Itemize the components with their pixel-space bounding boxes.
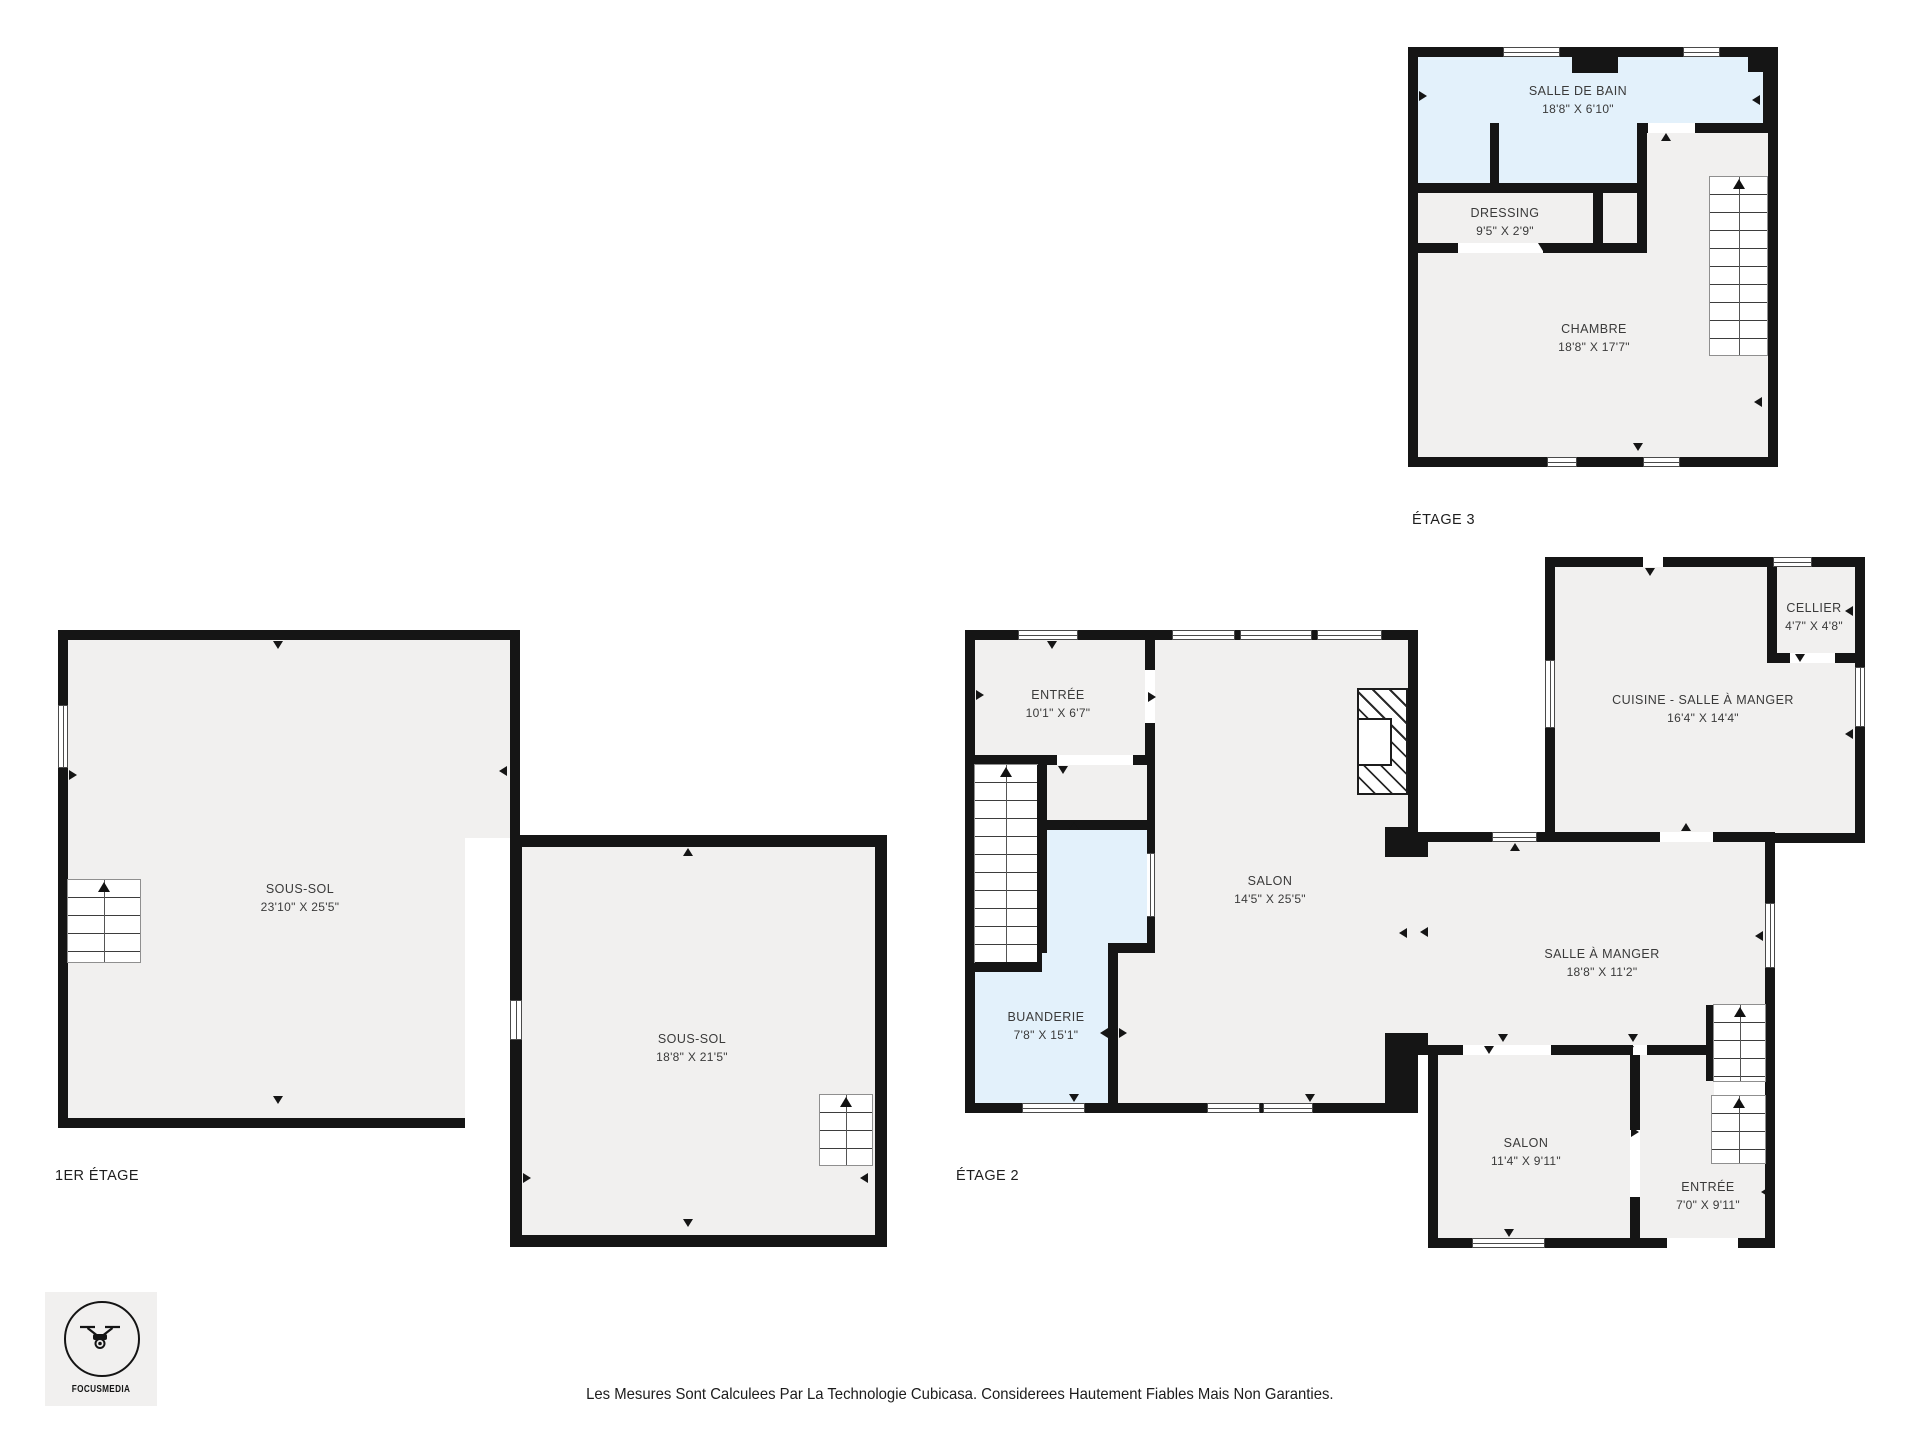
wall [1490,123,1499,183]
staircase-lower-flight [1712,1096,1765,1163]
wall [1108,953,1118,1103]
wall [1706,1005,1714,1081]
door-marker-icon [683,848,693,856]
staircase [975,765,1037,962]
door-marker-icon [1498,1034,1508,1042]
door-marker-icon [1538,243,1548,251]
window [1492,832,1537,842]
double-staircase [1706,1005,1767,1163]
up-arrow-icon [1733,179,1745,189]
door-marker-icon [1058,766,1068,774]
up-arrow-icon [1734,1007,1746,1017]
room-label-cellier: CELLIER 4'7" X 4'8" [1785,601,1843,633]
window [1855,667,1865,727]
room-name: CUISINE - SALLE À MANGER [1612,693,1794,707]
window [1317,630,1382,640]
up-arrow-icon [1733,1098,1745,1108]
door-opening [1648,123,1695,133]
door-marker-icon [1845,606,1853,616]
floor-plan-page: SALLE DE BAIN 18'8" X 6'10" DRESSING 9'5… [0,0,1920,1440]
wall [1418,183,1637,193]
door-marker-icon [1645,568,1655,576]
door-marker-icon [1681,823,1691,831]
staircase [820,1095,872,1165]
window [1472,1238,1545,1248]
window [1545,660,1555,728]
measurement-disclaimer: Les Mesures Sont Calculees Par La Techno… [0,1386,1920,1404]
door-marker-icon [1845,729,1853,739]
disclaimer-text: Les Mesures Sont Calculees Par La Techno… [586,1386,1333,1404]
door-opening [1633,1045,1647,1055]
room-name: CHAMBRE [1558,322,1630,336]
room-buanderie-upper [1047,830,1147,953]
room-label-chambre: CHAMBRE 18'8" X 17'7" [1558,322,1630,354]
room-name: SALON [1491,1136,1561,1150]
wall [975,962,1042,972]
window [1683,47,1720,57]
door-marker-icon [69,770,77,780]
window [1018,630,1078,640]
door-marker-icon [1498,185,1508,193]
staircase [68,880,140,962]
up-arrow-icon [1000,767,1012,777]
door-marker-icon [1305,1094,1315,1102]
floor-label-etage-2: ÉTAGE 2 [956,1168,1019,1184]
room-dims: 14'5" X 25'5" [1234,892,1306,906]
door-marker-icon [273,1096,283,1104]
room-name: SOUS-SOL [656,1032,728,1046]
staircase-upper-flight [1714,1005,1765,1081]
door-marker-icon [1510,843,1520,851]
room-dims: 7'8" X 15'1" [1008,1028,1085,1042]
door-marker-icon [1761,1187,1769,1197]
window [510,1000,522,1040]
door-opening [1667,1238,1738,1248]
wall [1572,57,1618,73]
room-dims: 10'1" X 6'7" [1026,706,1091,720]
wall [1593,193,1603,243]
window [1022,1103,1085,1113]
door-marker-icon [499,766,507,776]
door-marker-icon [1752,95,1760,105]
room-dims: 16'4" X 14'4" [1612,711,1794,725]
room-corridor [1603,193,1637,243]
room-label-salle-de-bain: SALLE DE BAIN 18'8" X 6'10" [1529,84,1627,116]
window [1207,1103,1260,1113]
door-opening [1660,832,1713,842]
room-dims: 18'8" X 21'5" [656,1050,728,1064]
door-marker-icon [1755,931,1763,941]
door-marker-icon [1633,443,1643,451]
room-dims: 7'0" X 9'11" [1676,1198,1740,1212]
room-name: ENTRÉE [1676,1180,1740,1194]
room-label-salle-a-manger: SALLE À MANGER 18'8" X 11'2" [1544,947,1659,979]
floor-label-1er-etage: 1ER ÉTAGE [55,1168,139,1184]
room-name: SALLE À MANGER [1544,947,1659,961]
window [1172,630,1235,640]
room-label-salon-grand: SALON 14'5" X 25'5" [1234,874,1306,906]
window [1773,557,1812,567]
door-marker-icon [523,1173,531,1183]
passage-opening [1408,857,1418,1033]
door-opening [1463,1045,1551,1055]
room-dims: 18'8" X 6'10" [1529,102,1627,116]
window [1643,457,1680,467]
room-buanderie-link [1042,953,1108,972]
door-opening [1458,243,1543,253]
door-marker-icon [1504,1229,1514,1237]
door-marker-icon [1661,133,1671,141]
wall [1108,943,1155,953]
door-marker-icon [1420,927,1428,937]
room-label-dressing: DRESSING 9'5" X 2'9" [1471,206,1540,238]
door-opening [1630,1130,1640,1197]
room-dims: 11'4" X 9'11" [1491,1154,1561,1168]
door-marker-icon [1148,692,1156,702]
room-name: ENTRÉE [1026,688,1091,702]
wall [1637,123,1647,243]
room-label-entree-2: ENTRÉE 7'0" X 9'11" [1676,1180,1740,1212]
room-name: BUANDERIE [1008,1010,1085,1024]
door-marker-icon [1624,1046,1634,1054]
up-arrow-icon [98,882,110,892]
door-marker-icon [273,641,283,649]
room-dims: 9'5" X 2'9" [1471,224,1540,238]
wall [1385,1033,1418,1113]
staircase [1710,177,1767,355]
plan-overlap-margin [465,838,510,1130]
window [1503,47,1560,57]
room-name: SALON [1234,874,1306,888]
door-marker-icon [1754,397,1762,407]
fireplace-hearth [1357,718,1392,766]
door-marker-icon [1100,1028,1108,1038]
up-arrow-icon [840,1097,852,1107]
wall [1767,567,1777,653]
room-dims: 4'7" X 4'8" [1785,619,1843,633]
door-opening [1057,755,1133,765]
door-opening [1643,557,1663,567]
wall [1385,827,1418,857]
room-name: SOUS-SOL [261,882,340,896]
stair-landing [1714,1082,1765,1095]
room-name: SALLE DE BAIN [1529,84,1627,98]
door-marker-icon [1047,641,1057,649]
door-marker-icon [1484,1046,1494,1054]
room-label-cuisine: CUISINE - SALLE À MANGER 16'4" X 14'4" [1612,693,1794,725]
room-label-entree-1: ENTRÉE 10'1" X 6'7" [1026,688,1091,720]
window [1765,903,1775,968]
room-sous-sol-a [68,640,510,1118]
room-dims: 18'8" X 11'2" [1544,965,1659,979]
floor-label-etage-3: ÉTAGE 3 [1412,512,1475,528]
room-label-sous-sol-a: SOUS-SOL 23'10" X 25'5" [261,882,340,914]
door-marker-icon [860,1173,868,1183]
door-marker-icon [1399,928,1407,938]
room-dims: 18'8" X 17'7" [1558,340,1630,354]
wall [1748,47,1778,72]
room-label-buanderie: BUANDERIE 7'8" X 15'1" [1008,1010,1085,1042]
room-label-salon-petit: SALON 11'4" X 9'11" [1491,1136,1561,1168]
drone-icon [78,1322,122,1352]
window [1240,630,1312,640]
door-marker-icon [1419,91,1427,101]
wall [1037,820,1147,830]
door-marker-icon [976,690,984,700]
door-marker-icon [1795,654,1805,662]
passage-opening [1418,857,1428,1033]
room-label-sous-sol-b: SOUS-SOL 18'8" X 21'5" [656,1032,728,1064]
door-marker-icon [1069,822,1079,830]
door-marker-icon [1119,1028,1127,1038]
room-name: DRESSING [1471,206,1540,220]
door-marker-icon [1069,1094,1079,1102]
door-marker-icon [1628,1034,1638,1042]
window [1263,1103,1313,1113]
fireplace [1357,688,1408,795]
room-dims: 23'10" X 25'5" [261,900,340,914]
window [58,705,68,768]
floorplan-sous-sol-a [58,630,520,1128]
door-marker-icon [1631,1127,1639,1137]
door-marker-icon [683,1219,693,1227]
room-name: CELLIER [1785,601,1843,615]
window [1547,457,1577,467]
wall [1037,765,1047,962]
